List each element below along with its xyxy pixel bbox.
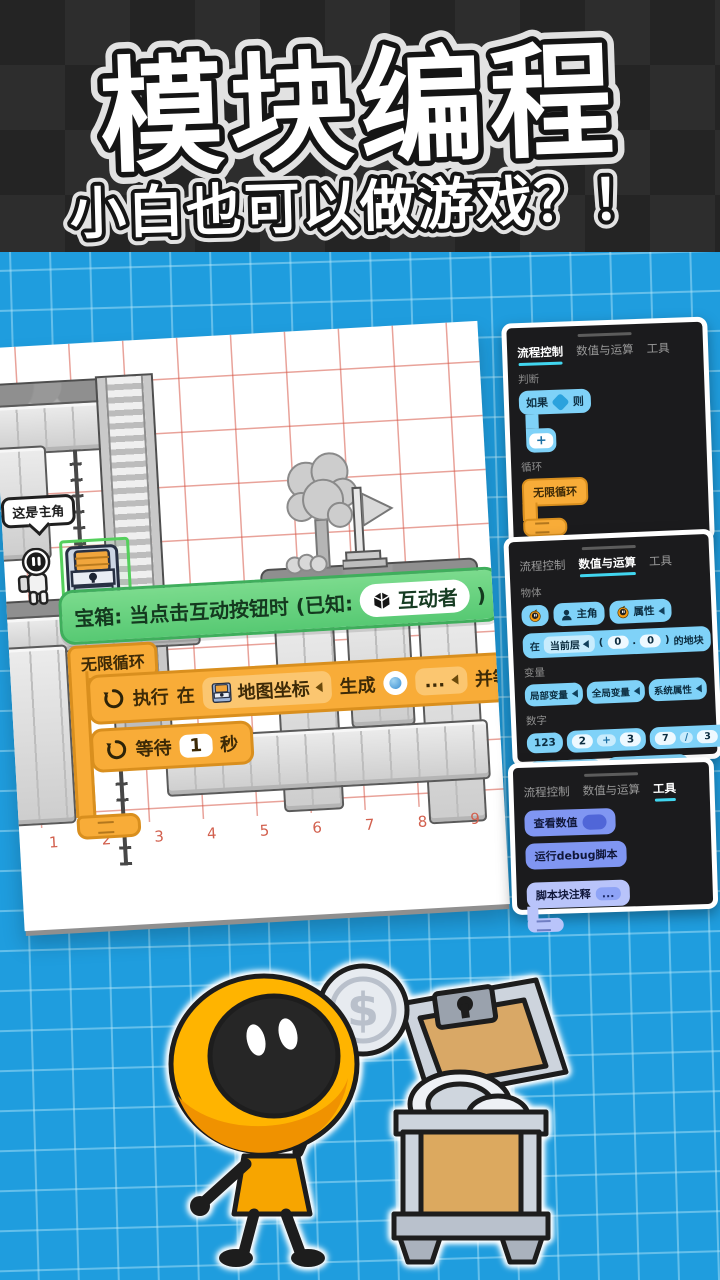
hero-sprite[interactable] bbox=[13, 547, 60, 607]
watch-value-block[interactable]: 查看数值 bbox=[524, 808, 616, 837]
tab-math[interactable]: 数值与运算 bbox=[576, 341, 634, 363]
dropdown-arrow-icon bbox=[451, 675, 459, 685]
tab-math[interactable]: 数值与运算 bbox=[582, 781, 640, 803]
operand-b[interactable]: 3 bbox=[697, 729, 718, 743]
operand-a[interactable]: 7 bbox=[655, 731, 676, 745]
c-foot bbox=[528, 918, 564, 933]
dropdown-arrow-icon bbox=[696, 684, 702, 692]
execute-verb: 执行 bbox=[132, 683, 169, 711]
watch-label: 查看数值 bbox=[533, 814, 577, 831]
title-art: 模块编程 模块编程 小白也可以做游戏？！ 小白也可以做游戏？！ bbox=[0, 0, 720, 252]
wait-verb: 等待 bbox=[135, 734, 172, 762]
spawn-label: 生成 bbox=[339, 671, 376, 699]
mascot-icon bbox=[528, 609, 542, 623]
layer-dropdown[interactable]: 当前层 bbox=[543, 635, 595, 654]
hero-label: 主角 bbox=[576, 606, 598, 622]
modulo-block[interactable]: 7 / 3 的余数 bbox=[650, 723, 720, 749]
local-var-label: 局部变量 bbox=[530, 687, 569, 703]
tile-at-block[interactable]: 在 当前层 ( 0 . 0 ) 的地块 bbox=[522, 626, 711, 659]
loop-arrow-icon bbox=[102, 687, 125, 710]
divide-operator[interactable]: / bbox=[680, 731, 694, 743]
map-coord-label: 地图坐标 bbox=[237, 675, 310, 705]
page-subtitle: 小白也可以做游戏？！ bbox=[69, 167, 651, 247]
palette-tabs: 流程控制 数值与运算 工具 bbox=[523, 779, 700, 805]
value-slot[interactable] bbox=[582, 814, 606, 830]
mascot-icon bbox=[616, 605, 630, 619]
drag-handle[interactable] bbox=[578, 332, 632, 337]
tab-flow-control[interactable]: 流程控制 bbox=[519, 557, 566, 579]
ellipsis-label: ... bbox=[424, 670, 446, 692]
spawn-more-dropdown[interactable]: ... bbox=[415, 666, 468, 696]
local-var-block[interactable]: 局部变量 bbox=[524, 682, 583, 706]
event-block-text: 宝箱: 当点击互动按钮时 (已知: bbox=[73, 587, 353, 632]
palette-panel-flow: 流程控制 数值与运算 工具 判断 如果 则 + 循环 无限循环 循环 10 次 bbox=[501, 316, 715, 547]
if-label: 如果 bbox=[526, 394, 549, 411]
plus-label: + bbox=[529, 432, 554, 448]
dropdown-arrow-icon bbox=[583, 640, 589, 648]
hero-object-block[interactable]: 主角 bbox=[553, 601, 605, 626]
then-label: 则 bbox=[573, 393, 585, 409]
drag-handle[interactable] bbox=[584, 772, 638, 777]
section-loop: 循环 bbox=[521, 454, 697, 475]
x-input[interactable]: 0 bbox=[607, 635, 628, 649]
wait-unit: 秒 bbox=[219, 730, 238, 757]
grip-icon bbox=[535, 522, 549, 533]
palette-panel-math: 流程控制 数值与运算 工具 物体 主角 bbox=[503, 529, 720, 768]
if-block-arm bbox=[525, 414, 538, 428]
forever-palette-block[interactable]: 无限循环 bbox=[522, 473, 700, 537]
comment-label: 脚本块注释 bbox=[536, 886, 591, 904]
page-title: 模块编程 bbox=[97, 29, 622, 191]
palette-panel-tools: 流程控制 数值与运算 工具 查看数值 运行debug脚本 脚本块注释 ... bbox=[508, 757, 719, 915]
flag-sprite bbox=[338, 484, 401, 571]
tab-math[interactable]: 数值与运算 bbox=[578, 554, 636, 576]
tab-flow-control[interactable]: 流程控制 bbox=[517, 344, 564, 366]
drag-handle[interactable] bbox=[582, 545, 636, 550]
comment-block[interactable]: 脚本块注释 ... bbox=[526, 880, 630, 941]
speech-bubble-text: 这是主角 bbox=[12, 504, 65, 522]
plus-operator[interactable]: + bbox=[597, 734, 616, 747]
loop-arrow-icon bbox=[105, 738, 128, 761]
attribute-label: 属性 bbox=[633, 603, 655, 619]
tab-tools[interactable]: 工具 bbox=[649, 552, 673, 573]
person-icon bbox=[560, 608, 572, 620]
axis-label: 1 bbox=[43, 833, 64, 852]
level-editor-canvas[interactable]: 这是主角 宝箱: 当点击互动按钮时 (已知: bbox=[0, 321, 510, 931]
if-block[interactable]: 如果 则 bbox=[519, 389, 592, 415]
attribute-block[interactable]: 属性 bbox=[609, 599, 672, 625]
comment-head: 脚本块注释 ... bbox=[526, 880, 629, 909]
dropdown-arrow-icon bbox=[315, 682, 323, 692]
operand-a[interactable]: 2 bbox=[572, 734, 594, 749]
wait-value-input[interactable]: 1 bbox=[179, 733, 213, 758]
paren-close: ) bbox=[665, 635, 670, 646]
number-literal-block[interactable]: 123 bbox=[527, 732, 564, 753]
promo-page: 模块编程 模块编程 小白也可以做游戏？！ 小白也可以做游戏？！ bbox=[0, 0, 720, 1280]
grip-icon bbox=[537, 920, 551, 931]
comment-more[interactable]: ... bbox=[596, 886, 621, 900]
spawn-item-icon[interactable] bbox=[383, 670, 408, 695]
speech-bubble: 这是主角 bbox=[0, 494, 76, 529]
dropdown-arrow-icon bbox=[572, 690, 578, 698]
chest-thumb-icon bbox=[211, 682, 232, 703]
operand-b[interactable]: 3 bbox=[620, 732, 642, 747]
debug-label: 运行debug脚本 bbox=[534, 846, 617, 865]
paren-open: ( bbox=[599, 637, 604, 648]
dropdown-arrow-icon bbox=[658, 606, 664, 614]
execute-at: 在 bbox=[176, 681, 195, 708]
system-attr-label: 系统属性 bbox=[654, 682, 693, 698]
mascot-art: $ bbox=[171, 966, 407, 1267]
addition-block[interactable]: 2 + 3 bbox=[566, 728, 646, 753]
layer-label: 当前层 bbox=[550, 636, 581, 652]
at-label: 在 bbox=[530, 638, 541, 653]
condition-diamond-icon bbox=[551, 392, 569, 410]
tile-suffix: 的地块 bbox=[673, 631, 704, 647]
palette-tabs: 流程控制 数值与运算 工具 bbox=[517, 339, 694, 365]
y-input[interactable]: 0 bbox=[640, 634, 661, 648]
grip-icon bbox=[98, 821, 115, 834]
global-var-label: 全局变量 bbox=[592, 684, 631, 700]
global-var-block[interactable]: 全局变量 bbox=[586, 680, 645, 704]
cube-icon bbox=[371, 590, 392, 611]
event-block-close: ) bbox=[476, 582, 486, 606]
forever-loop-block[interactable]: 无限循环 执行 在 地图坐标 bbox=[67, 623, 497, 838]
tab-tools[interactable]: 工具 bbox=[653, 780, 677, 801]
mascot-and-chest-illustration: $ bbox=[148, 946, 584, 1276]
tab-flow-control[interactable]: 流程控制 bbox=[523, 783, 570, 804]
object-blocks-row: 主角 属性 bbox=[521, 597, 702, 628]
wait-block[interactable]: 等待 1 秒 bbox=[90, 720, 255, 773]
if-block-group: 如果 则 + bbox=[519, 385, 697, 453]
tab-tools[interactable]: 工具 bbox=[646, 340, 670, 361]
system-attr-block[interactable]: 系统属性 bbox=[648, 677, 707, 701]
forever-loop-foot bbox=[76, 812, 141, 840]
event-param-label: 互动者 bbox=[397, 581, 459, 613]
run-debug-block[interactable]: 运行debug脚本 bbox=[525, 841, 627, 870]
promo-header: 模块编程 模块编程 小白也可以做游戏？！ 小白也可以做游戏？！ bbox=[0, 0, 720, 252]
map-coord-dropdown[interactable]: 地图坐标 bbox=[202, 671, 333, 710]
number-blocks-row: 123 2 + 3 7 / 3 的余数 bbox=[526, 725, 707, 755]
section-judge: 判断 bbox=[518, 366, 694, 387]
add-branch-button[interactable]: + bbox=[526, 428, 557, 453]
treasure-chest-art bbox=[394, 980, 566, 1262]
event-param-pill[interactable]: 互动者 bbox=[359, 579, 471, 618]
tool-blocks: 查看数值 运行debug脚本 脚本块注释 ... bbox=[524, 805, 704, 940]
palette-tabs: 流程控制 数值与运算 工具 bbox=[519, 551, 700, 579]
tile-at-row: 在 当前层 ( 0 . 0 ) 的地块 bbox=[522, 626, 703, 659]
variable-blocks-row: 局部变量 全局变量 系统属性 bbox=[524, 677, 705, 707]
self-object-block[interactable] bbox=[521, 605, 549, 627]
comma: . bbox=[632, 636, 636, 647]
dropdown-arrow-icon bbox=[634, 687, 640, 695]
